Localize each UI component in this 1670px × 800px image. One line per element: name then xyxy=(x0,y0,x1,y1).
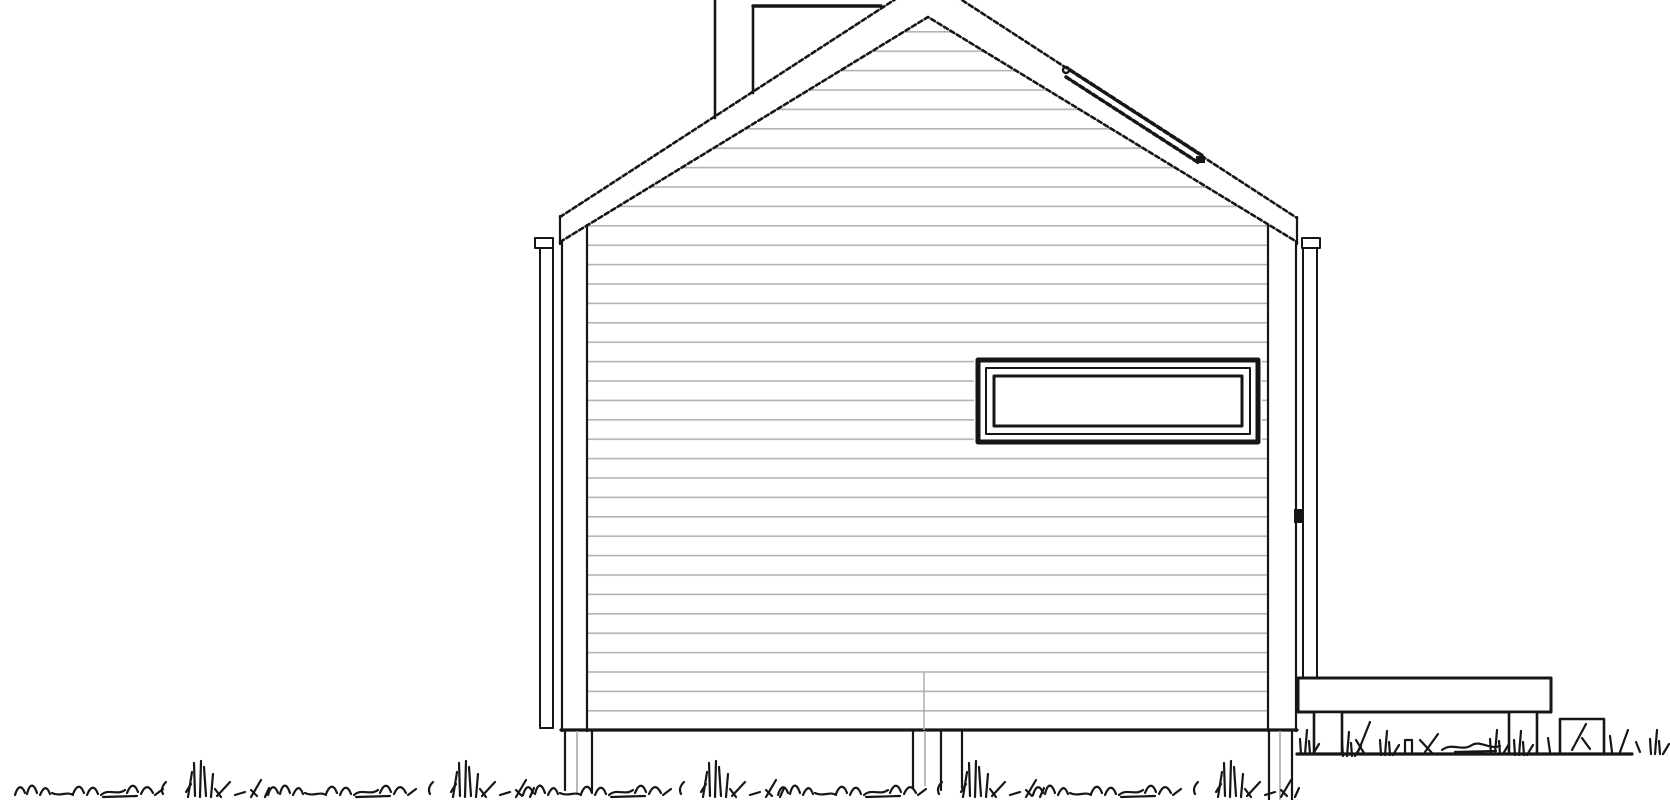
strip-window xyxy=(974,356,1262,446)
deck-post-left xyxy=(1314,712,1342,754)
elevation-drawing-canvas xyxy=(0,0,1670,800)
house-side-elevation xyxy=(0,0,1670,800)
gutter-outlet-right xyxy=(1302,238,1320,248)
window-outer-frame xyxy=(978,360,1258,442)
gutter-outlet-left xyxy=(535,238,553,248)
deck-slab xyxy=(1298,678,1551,712)
downspout-bracket xyxy=(1294,509,1304,523)
